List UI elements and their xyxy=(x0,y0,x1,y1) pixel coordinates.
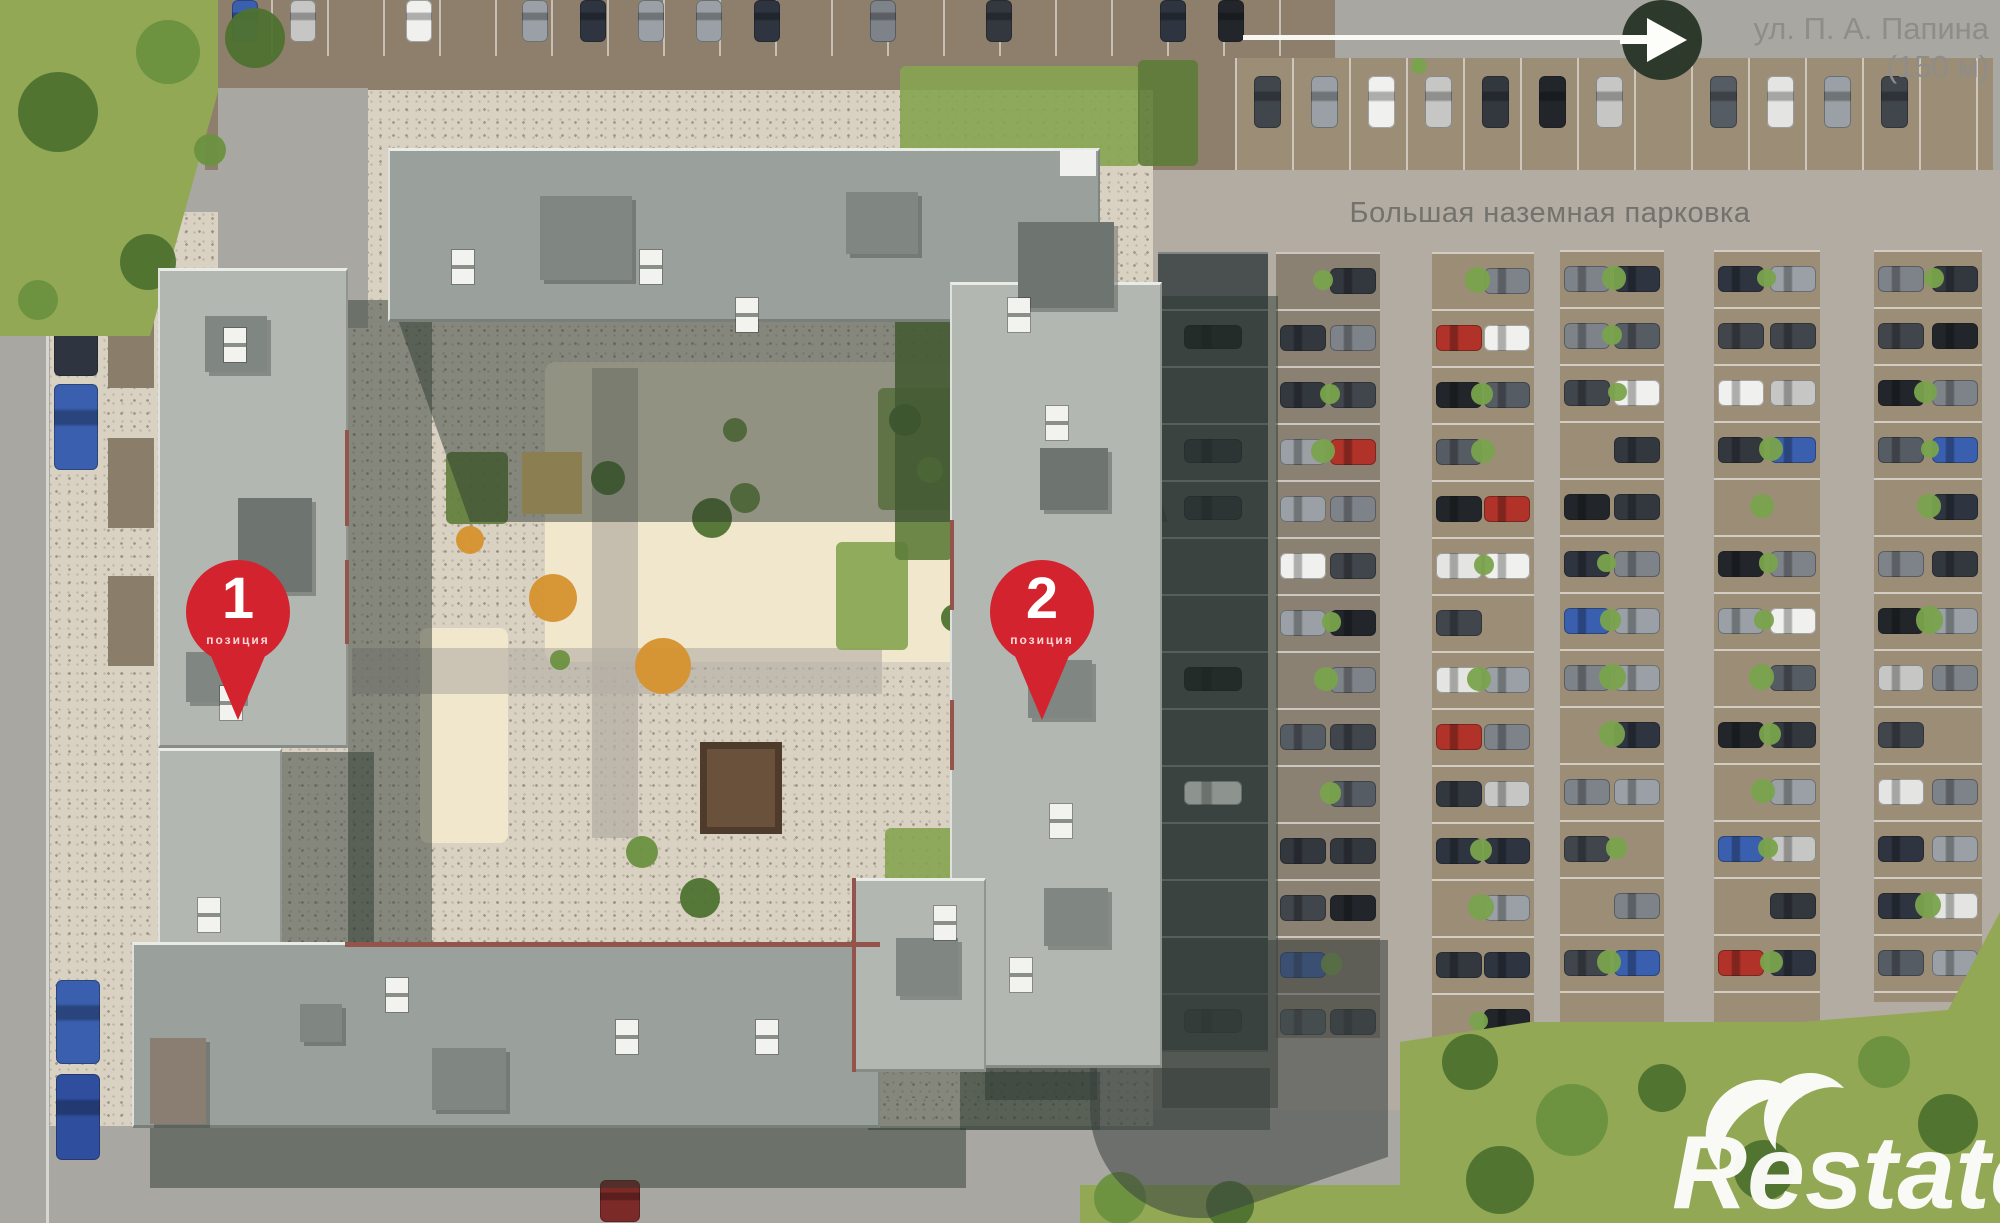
watermark-logo: Restate xyxy=(1672,1072,2000,1223)
bush-icon xyxy=(1751,779,1775,803)
pin-number: 1 xyxy=(186,565,290,632)
parked-car xyxy=(1330,325,1376,351)
roof-structure xyxy=(540,196,632,280)
parked-car xyxy=(1770,779,1816,805)
parked-car xyxy=(1160,0,1186,42)
tree-icon xyxy=(529,574,577,622)
parked-car xyxy=(1330,553,1376,579)
parked-car xyxy=(1280,838,1326,864)
parked-car xyxy=(406,0,432,42)
parking-area-label: Большая наземная парковка xyxy=(1300,197,1800,230)
tree-icon xyxy=(550,650,570,670)
tree-icon xyxy=(1536,1084,1608,1156)
parked-car xyxy=(1484,325,1530,351)
tree-icon xyxy=(194,134,226,166)
bush-icon xyxy=(1471,439,1495,463)
parked-car xyxy=(1425,76,1452,128)
parked-car xyxy=(1484,268,1530,294)
map-pin-1[interactable]: 1 позиция xyxy=(180,560,296,720)
parked-car xyxy=(290,0,316,42)
roof-structure xyxy=(300,1004,342,1042)
roof-ac-unit xyxy=(1008,298,1030,332)
tree-icon xyxy=(136,20,200,84)
parked-car xyxy=(1878,323,1924,349)
parked-car xyxy=(1330,838,1376,864)
bush-icon xyxy=(1916,606,1943,633)
parked-car xyxy=(1878,722,1924,748)
map-pin-1-head[interactable]: 1 позиция xyxy=(186,560,290,664)
bush-icon xyxy=(1757,269,1776,288)
parked-car xyxy=(1539,76,1566,128)
tree-icon xyxy=(225,8,285,68)
parked-car xyxy=(1280,553,1326,579)
bush-icon xyxy=(1608,383,1627,402)
parked-car xyxy=(1718,551,1764,577)
parked-car xyxy=(1878,665,1924,691)
tree-icon xyxy=(626,836,658,868)
parked-car xyxy=(1280,610,1326,636)
parked-car xyxy=(1330,268,1376,294)
parked-car xyxy=(1436,496,1482,522)
roof-ac-unit xyxy=(756,1020,778,1054)
parked-car xyxy=(1878,266,1924,292)
street-label-line1: ул. П. А. Папина xyxy=(1655,10,1989,48)
parked-car xyxy=(1718,380,1764,406)
parked-car xyxy=(1770,893,1816,919)
bush-icon xyxy=(1749,664,1774,689)
tree-icon xyxy=(1466,1146,1534,1214)
bush-icon xyxy=(1322,612,1341,631)
parked-car xyxy=(1484,952,1530,978)
parked-car xyxy=(986,0,1012,42)
parked-car xyxy=(1596,76,1623,128)
tree-icon xyxy=(680,878,720,918)
bush-icon xyxy=(1599,721,1625,747)
parked-car xyxy=(56,1074,100,1160)
parked-car xyxy=(1878,437,1924,463)
parked-car xyxy=(1564,380,1610,406)
bush-icon xyxy=(1606,837,1627,858)
roof-ac-unit xyxy=(1050,804,1072,838)
tree-icon xyxy=(635,638,691,694)
roof-detail xyxy=(1060,150,1096,176)
parked-car xyxy=(1770,665,1816,691)
tree-icon xyxy=(18,280,58,320)
parked-car xyxy=(1770,266,1816,292)
bush-icon xyxy=(1469,1012,1487,1030)
bush-icon xyxy=(1602,266,1625,289)
building-shadow xyxy=(150,1128,966,1188)
parked-car xyxy=(1254,76,1281,128)
roof-trim xyxy=(852,878,856,1072)
roof-ac-unit xyxy=(452,250,474,284)
parked-car xyxy=(1280,724,1326,750)
pin-caption: позиция xyxy=(990,633,1094,647)
parking-pocket xyxy=(108,576,154,666)
parked-car xyxy=(1330,439,1376,465)
parked-car xyxy=(1484,724,1530,750)
roof-ac-unit xyxy=(386,978,408,1012)
roof-trim xyxy=(345,430,349,526)
pergola xyxy=(700,742,782,834)
parked-car xyxy=(1484,667,1530,693)
bush-icon xyxy=(1760,951,1783,974)
roof-trim xyxy=(950,700,954,770)
roof-ac-unit xyxy=(224,328,246,362)
parked-car xyxy=(1311,76,1338,128)
bush-icon xyxy=(1759,553,1778,572)
parked-car xyxy=(1436,952,1482,978)
parked-car xyxy=(1564,779,1610,805)
map-pin-2[interactable]: 2 позиция xyxy=(984,560,1100,720)
pin-tail xyxy=(211,656,265,720)
parked-car xyxy=(1770,323,1816,349)
roof-structure xyxy=(150,1038,206,1124)
bush-icon xyxy=(1467,667,1491,691)
parked-car xyxy=(1564,494,1610,520)
roof-trim xyxy=(345,942,880,947)
parked-car xyxy=(1614,494,1660,520)
parked-car xyxy=(1482,76,1509,128)
tree-icon xyxy=(1442,1034,1498,1090)
parked-car xyxy=(1932,380,1978,406)
roof-structure xyxy=(1044,888,1108,946)
parked-car xyxy=(696,0,722,42)
parked-car xyxy=(1280,325,1326,351)
bush-icon xyxy=(1754,610,1774,630)
pin-tail xyxy=(1015,656,1069,720)
bush-icon xyxy=(1758,838,1778,858)
parked-car xyxy=(1718,722,1764,748)
roof-structure xyxy=(896,938,958,996)
parked-car xyxy=(1436,325,1482,351)
roof-structure xyxy=(432,1048,506,1110)
street-label: ул. П. А. Папина (150 м) xyxy=(1655,10,1989,86)
parked-car xyxy=(1878,551,1924,577)
parked-car xyxy=(1280,496,1326,522)
roof-structure xyxy=(1040,448,1108,510)
bush-icon xyxy=(1474,555,1494,575)
bush-icon xyxy=(1599,664,1626,691)
parked-car xyxy=(1614,779,1660,805)
building-roof xyxy=(158,748,282,960)
parked-car xyxy=(54,384,98,470)
parked-car xyxy=(1878,950,1924,976)
parked-car xyxy=(1368,76,1395,128)
parked-car xyxy=(1330,496,1376,522)
parked-car xyxy=(1932,836,1978,862)
bush-icon xyxy=(1600,609,1621,630)
parked-car xyxy=(1718,950,1764,976)
roof-trim xyxy=(950,520,954,610)
parked-car xyxy=(638,0,664,42)
bush-icon xyxy=(1917,494,1940,517)
parked-car xyxy=(1484,781,1530,807)
parked-car xyxy=(1436,724,1482,750)
parked-car xyxy=(1564,836,1610,862)
parked-car xyxy=(1878,779,1924,805)
bush-icon xyxy=(1320,782,1341,803)
parked-car xyxy=(1330,724,1376,750)
bush-icon xyxy=(1924,268,1944,288)
watermark-text: Restate xyxy=(1672,1115,2000,1222)
roof-trim xyxy=(345,560,349,644)
parked-car xyxy=(1878,836,1924,862)
pin-caption: позиция xyxy=(186,633,290,647)
parked-car xyxy=(522,0,548,42)
street-label-line2: (150 м) xyxy=(1655,48,1989,86)
garden-bed xyxy=(1138,60,1198,166)
parked-car xyxy=(1770,608,1816,634)
bush-icon xyxy=(1914,381,1937,404)
roof-ac-unit xyxy=(934,906,956,940)
parked-car xyxy=(56,980,100,1064)
roof-structure xyxy=(846,192,918,254)
parked-car xyxy=(1614,437,1660,463)
parked-car xyxy=(1484,496,1530,522)
parked-car xyxy=(1770,380,1816,406)
roof-ac-unit xyxy=(1010,958,1032,992)
parked-car xyxy=(754,0,780,42)
parking-pocket xyxy=(108,438,154,528)
parked-car xyxy=(580,0,606,42)
roof-ac-unit xyxy=(198,898,220,932)
bush-icon xyxy=(1313,270,1333,290)
parked-car xyxy=(1932,323,1978,349)
roof-structure xyxy=(1018,222,1114,308)
parked-car xyxy=(1218,0,1244,42)
roof-ac-unit xyxy=(1046,406,1068,440)
parked-car xyxy=(1436,610,1482,636)
bush-icon xyxy=(1411,58,1427,74)
parked-car xyxy=(1718,437,1764,463)
parked-car xyxy=(1436,781,1482,807)
parked-car xyxy=(1330,895,1376,921)
parked-car xyxy=(1614,893,1660,919)
map-pin-2-head[interactable]: 2 позиция xyxy=(990,560,1094,664)
roof-ac-unit xyxy=(640,250,662,284)
parked-car xyxy=(1932,779,1978,805)
route-line xyxy=(1243,35,1625,40)
tree-icon xyxy=(456,526,484,554)
parked-car xyxy=(870,0,896,42)
parked-car xyxy=(1932,551,1978,577)
bush-icon xyxy=(1465,267,1490,292)
parked-car xyxy=(1718,323,1764,349)
parked-car xyxy=(1614,551,1660,577)
bush-icon xyxy=(1314,667,1338,691)
roof-ac-unit xyxy=(736,298,758,332)
curb-line xyxy=(46,216,49,1223)
tree-icon xyxy=(18,72,98,152)
masterplan-aerial-view: ул. П. А. Папина (150 м) Большая наземна… xyxy=(0,0,2000,1223)
bush-icon xyxy=(1320,384,1340,404)
parked-car xyxy=(1280,895,1326,921)
roof-ac-unit xyxy=(616,1020,638,1054)
parked-car xyxy=(1932,665,1978,691)
pin-number: 2 xyxy=(990,565,1094,632)
